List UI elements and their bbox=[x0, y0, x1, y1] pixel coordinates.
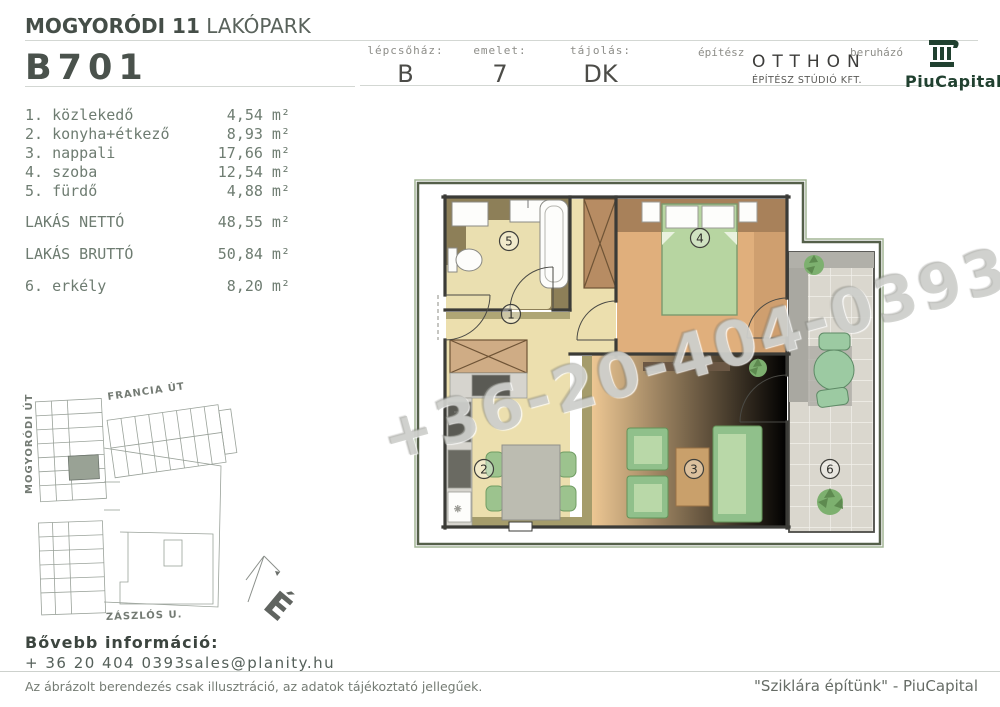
staircase-label: lépcsőház: bbox=[358, 44, 453, 57]
total-name: LAKÁS BRUTTÓ bbox=[25, 245, 218, 264]
total-area: 50,84 m² bbox=[218, 245, 290, 264]
room-number: 1 bbox=[507, 308, 515, 322]
room-name: 6. erkély bbox=[25, 277, 227, 296]
orientation-label: tájolás: bbox=[553, 44, 648, 57]
unit-divider bbox=[25, 86, 355, 87]
chair bbox=[558, 486, 576, 511]
street-label-zaszlos: ZÁSZLÓS U. bbox=[106, 607, 183, 623]
architect-label: építész bbox=[698, 46, 744, 59]
site-plan: FRANCIA ÚT MOGYORÓDI ÚT ZÁSZLÓS U. É bbox=[8, 382, 308, 625]
slogan-text: "Sziklára építünk" - PiuCapital bbox=[754, 677, 978, 695]
pillow bbox=[666, 206, 698, 228]
balcony-chair bbox=[816, 387, 849, 408]
total-gross-row: LAKÁS BRUTTÓ50,84 m² bbox=[25, 245, 290, 264]
floor-value: 7 bbox=[455, 60, 545, 88]
room-area: 17,66 m² bbox=[218, 144, 290, 163]
architect-subtitle: ÉPÍTÉSZ STÚDIÓ KFT. bbox=[752, 75, 852, 86]
room-number: 3 bbox=[690, 463, 698, 477]
room-name: 1. közlekedő bbox=[25, 106, 227, 125]
toilet-bowl bbox=[456, 249, 482, 271]
disclaimer-text: Az ábrázolt berendezés csak illusztráció… bbox=[25, 679, 482, 694]
piucapital-column-icon bbox=[923, 40, 963, 68]
street-label-francia: FRANCIA ÚT bbox=[107, 382, 186, 403]
total-net-row: LAKÁS NETTÓ48,55 m² bbox=[25, 213, 290, 232]
room-list: 1. közlekedő4,54 m² 2. konyha+étkező8,93… bbox=[25, 106, 290, 296]
street-label-mogyorodi: MOGYORÓDI ÚT bbox=[22, 394, 35, 494]
total-area: 48,55 m² bbox=[218, 213, 290, 232]
room-area: 4,88 m² bbox=[227, 182, 290, 201]
chair bbox=[486, 486, 504, 511]
nightstand bbox=[739, 202, 757, 222]
more-info-title: Bővebb információ: bbox=[25, 633, 219, 652]
info-cell-staircase: lépcsőház: B bbox=[358, 44, 453, 88]
contact-phone: + 36 20 404 0393 bbox=[25, 654, 186, 672]
staircase-value: B bbox=[358, 60, 453, 88]
armchair-cushion bbox=[634, 484, 662, 512]
chair bbox=[558, 452, 576, 477]
datasheet-page: MOGYORÓDI 11 LAKÓPARK B701 lépcsőház: B … bbox=[0, 0, 1000, 707]
orientation-value: DK bbox=[553, 60, 648, 88]
bathtub bbox=[540, 200, 568, 288]
room-row: 3. nappali17,66 m² bbox=[25, 144, 290, 163]
window bbox=[509, 522, 532, 531]
developer-name: PiuCapital bbox=[905, 72, 980, 91]
info-cell-orientation: tájolás: DK bbox=[553, 44, 648, 88]
project-name-light: LAKÓPARK bbox=[206, 14, 311, 38]
developer-logo: PiuCapital bbox=[905, 40, 980, 91]
header-divider-top bbox=[25, 40, 978, 41]
room-row: 5. fürdő4,88 m² bbox=[25, 182, 290, 201]
room-number: 6 bbox=[826, 463, 834, 477]
room-number: 2 bbox=[480, 463, 488, 477]
architect-name: OTTHON bbox=[752, 52, 852, 72]
room-area: 8,20 m² bbox=[227, 277, 290, 296]
room-area: 12,54 m² bbox=[218, 163, 290, 182]
unit-id: B701 bbox=[25, 48, 149, 88]
nightstand bbox=[642, 202, 660, 222]
north-arrow-icon: É bbox=[246, 556, 300, 625]
room-number: 5 bbox=[505, 235, 513, 249]
pillow bbox=[702, 206, 734, 228]
room-name: 2. konyha+étkező bbox=[25, 125, 227, 144]
architect-logo: OTTHON ÉPÍTÉSZ STÚDIÓ KFT. bbox=[752, 52, 852, 86]
dining-table bbox=[502, 445, 560, 520]
balcony-row: 6. erkély8,20 m² bbox=[25, 277, 290, 296]
room-name: 4. szoba bbox=[25, 163, 218, 182]
developer-label: beruházó bbox=[850, 46, 903, 59]
room-row: 1. közlekedő4,54 m² bbox=[25, 106, 290, 125]
room-row: 4. szoba12,54 m² bbox=[25, 163, 290, 182]
room-number: 4 bbox=[696, 232, 704, 246]
contact-email: sales@planity.hu bbox=[185, 654, 335, 672]
floor-label: emelet: bbox=[455, 44, 545, 57]
room-row: 2. konyha+étkező8,93 m² bbox=[25, 125, 290, 144]
info-cell-floor: emelet: 7 bbox=[455, 44, 545, 88]
page-title: MOGYORÓDI 11 LAKÓPARK bbox=[25, 14, 311, 38]
room-name: 3. nappali bbox=[25, 144, 218, 163]
room-area: 4,54 m² bbox=[227, 106, 290, 125]
footer-divider bbox=[0, 671, 1000, 672]
total-name: LAKÁS NETTÓ bbox=[25, 213, 218, 232]
highlighted-unit bbox=[68, 455, 99, 481]
svg-text:✳: ✳ bbox=[454, 505, 462, 515]
project-name-bold: MOGYORÓDI 11 bbox=[25, 14, 200, 38]
armchair-cushion bbox=[634, 436, 662, 464]
shower bbox=[452, 202, 488, 226]
room-area: 8,93 m² bbox=[227, 125, 290, 144]
north-label: É bbox=[256, 583, 300, 625]
sofa-cushion bbox=[718, 434, 746, 514]
room-name: 5. fürdő bbox=[25, 182, 227, 201]
